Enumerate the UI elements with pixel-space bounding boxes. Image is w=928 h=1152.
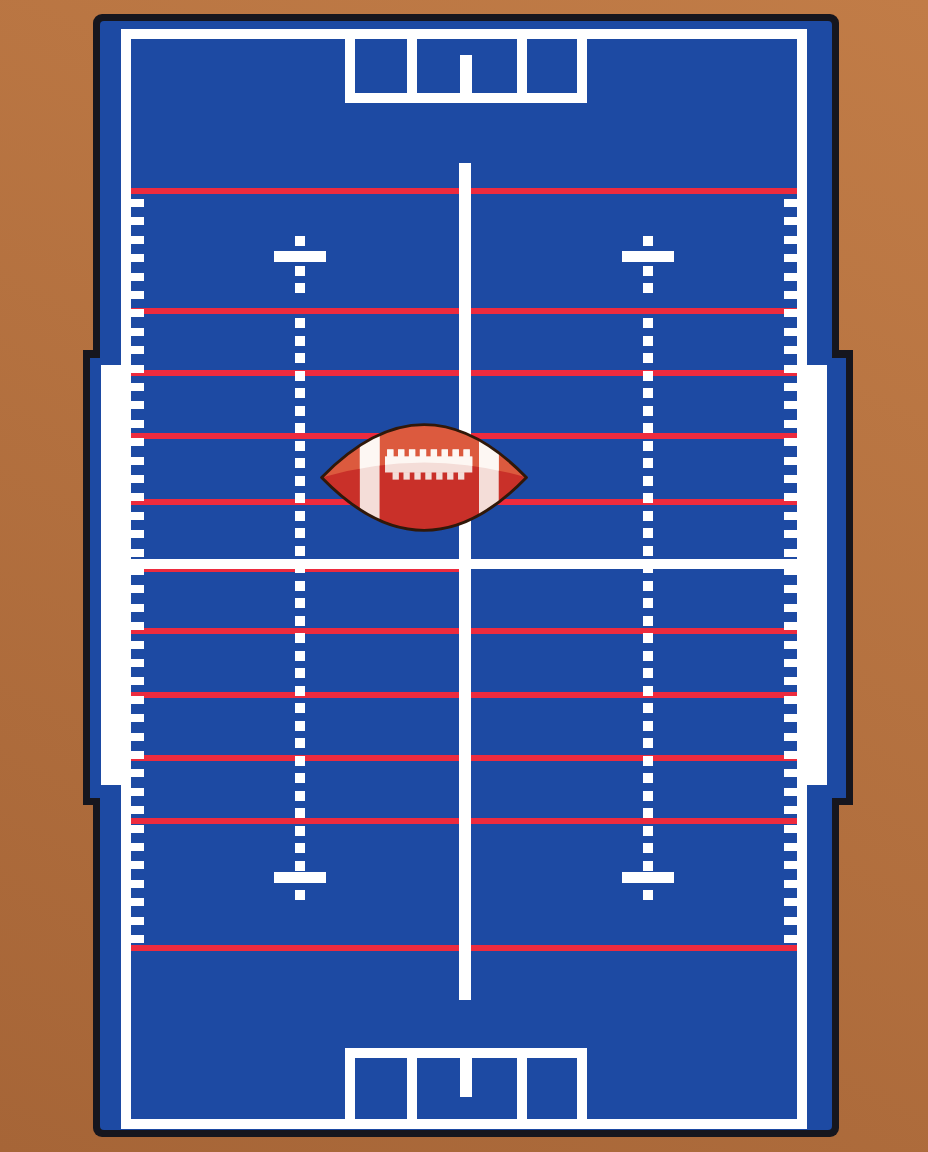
sideline-tick	[784, 659, 797, 667]
hash-dot	[643, 388, 653, 398]
football-icon	[200, 415, 732, 715]
sideline-tick	[784, 788, 797, 796]
sideline-tick	[131, 585, 144, 593]
hash-dot	[295, 756, 305, 766]
sideline-tick	[131, 825, 144, 833]
sideline-tick	[131, 401, 144, 409]
hash-dot	[295, 861, 305, 871]
sideline-tick	[131, 199, 144, 207]
sideline-tick	[784, 365, 797, 373]
sideline-tick	[131, 788, 144, 796]
sideline-tick	[784, 401, 797, 409]
sideline-tick	[131, 365, 144, 373]
sideline-tick	[784, 604, 797, 612]
sideline-tick	[131, 273, 144, 281]
sideline-tick	[131, 622, 144, 630]
hash-dot	[643, 808, 653, 818]
sideline-tick	[784, 217, 797, 225]
sideline-band-right	[797, 365, 827, 785]
sideline-tick	[784, 420, 797, 428]
sideline-tick	[131, 806, 144, 814]
sideline-tick	[784, 291, 797, 299]
sideline-tick	[131, 861, 144, 869]
sideline-tick	[131, 677, 144, 685]
sideline-tick	[131, 641, 144, 649]
hash-dot	[295, 890, 305, 900]
sideline-tick	[131, 346, 144, 354]
sideline-tick	[784, 199, 797, 207]
sideline-tick	[784, 751, 797, 759]
sideline-tick	[131, 254, 144, 262]
sideline-tick	[131, 604, 144, 612]
hash-dot	[643, 826, 653, 836]
football-body	[312, 415, 535, 541]
sideline-tick	[131, 549, 144, 557]
hash-dot	[295, 336, 305, 346]
hash-dot	[643, 756, 653, 766]
goal-divider	[345, 1048, 355, 1119]
boundary-line-top	[131, 29, 797, 39]
sideline-tick	[784, 254, 797, 262]
hash-dot	[643, 861, 653, 871]
hash-dot	[643, 371, 653, 381]
sideline-tick	[131, 880, 144, 888]
sideline-tick	[131, 512, 144, 520]
sideline-tick	[131, 475, 144, 483]
sideline-tick	[131, 898, 144, 906]
sideline-tick	[784, 898, 797, 906]
sideline-tick	[784, 236, 797, 244]
sideline-tick	[131, 935, 144, 943]
goal-bar	[345, 93, 587, 103]
sideline-tick	[784, 475, 797, 483]
hash-dot	[295, 353, 305, 363]
sideline-tick	[784, 567, 797, 575]
sideline-tick	[784, 309, 797, 317]
hash-dot	[295, 843, 305, 853]
hash-dot	[643, 353, 653, 363]
sideline-tick	[131, 420, 144, 428]
hash-dot	[643, 266, 653, 276]
sideline-tick	[784, 457, 797, 465]
hash-dot	[295, 738, 305, 748]
sideline-tick	[784, 677, 797, 685]
sideline-tick	[784, 585, 797, 593]
boundary-line-bottom	[131, 1119, 797, 1129]
sideline-tick	[131, 309, 144, 317]
goal-divider	[407, 1048, 417, 1119]
hash-dot	[643, 738, 653, 748]
sideline-tick	[131, 236, 144, 244]
hash-dot	[295, 283, 305, 293]
sideline-tick	[784, 861, 797, 869]
sideline-tick	[784, 696, 797, 704]
sideline-tick	[784, 917, 797, 925]
hash-dot	[295, 371, 305, 381]
goal-divider	[517, 1048, 527, 1119]
sideline-tick	[784, 383, 797, 391]
sideline-tick	[784, 346, 797, 354]
sideline-tick	[131, 696, 144, 704]
hash-dot	[295, 721, 305, 731]
hash-dot	[295, 826, 305, 836]
sideline-tick	[784, 530, 797, 538]
goal-bar	[345, 1048, 587, 1058]
goal-stub	[460, 1058, 472, 1097]
sideline-tick	[131, 714, 144, 722]
sideline-tick	[784, 935, 797, 943]
sideline-tick	[131, 328, 144, 336]
hash-dot	[295, 318, 305, 328]
sideline-tick	[131, 567, 144, 575]
hash-dot	[643, 890, 653, 900]
sideline-tick	[131, 383, 144, 391]
hash-dot	[643, 791, 653, 801]
sideline-tick	[131, 493, 144, 501]
sideline-tick	[131, 217, 144, 225]
sideline-tick	[784, 843, 797, 851]
sideline-tick	[131, 917, 144, 925]
sideline-tick	[131, 733, 144, 741]
hash-dot	[643, 283, 653, 293]
hash-dot	[295, 236, 305, 246]
hash-dot	[295, 773, 305, 783]
hash-bar	[622, 251, 674, 262]
goal-stub	[460, 55, 472, 93]
sideline-tick	[784, 880, 797, 888]
sideline-tick	[131, 438, 144, 446]
hash-dot	[295, 808, 305, 818]
sideline-tick	[784, 438, 797, 446]
sideline-tick	[131, 457, 144, 465]
hash-dot	[643, 236, 653, 246]
hash-bar	[622, 872, 674, 883]
hash-bar	[274, 251, 326, 262]
sideline-tick	[131, 530, 144, 538]
hash-dot	[643, 843, 653, 853]
sideline-tick	[784, 769, 797, 777]
sideline-tick	[131, 751, 144, 759]
sideline-tick	[784, 733, 797, 741]
sideline-tick	[784, 714, 797, 722]
sideline-tick	[784, 825, 797, 833]
hash-dot	[295, 266, 305, 276]
hash-dot	[643, 773, 653, 783]
sideline-tick	[131, 843, 144, 851]
sideline-tick	[131, 291, 144, 299]
hash-dot	[643, 721, 653, 731]
sideline-tick	[784, 328, 797, 336]
sideline-tick	[131, 659, 144, 667]
sideline-tick	[784, 641, 797, 649]
sideline-tick	[784, 273, 797, 281]
goal-divider	[577, 1048, 587, 1119]
hash-bar	[274, 872, 326, 883]
hash-dot	[643, 318, 653, 328]
football-field-poster	[0, 0, 928, 1152]
sideline-tick	[784, 806, 797, 814]
sideline-tick	[131, 769, 144, 777]
hash-dot	[295, 791, 305, 801]
sideline-tick	[784, 549, 797, 557]
sideline-tick	[784, 512, 797, 520]
sideline-band-left	[101, 365, 131, 785]
sideline-tick	[784, 493, 797, 501]
hash-dot	[643, 336, 653, 346]
hash-dot	[295, 388, 305, 398]
sideline-tick	[784, 622, 797, 630]
